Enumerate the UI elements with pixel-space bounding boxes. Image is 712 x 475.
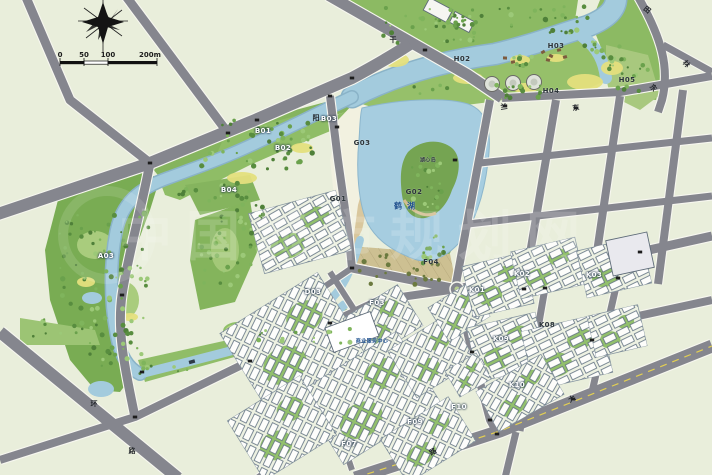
scale-label-0: 0 (58, 51, 63, 59)
site-plan-map: B01B02B03B04A03G01G02G03H02H03H04H05D03F… (0, 0, 712, 475)
scale-label-200m: 200m (139, 51, 161, 59)
scale-label-100: 100 (101, 51, 116, 59)
map-graphics (0, 0, 712, 475)
scale-label-50: 50 (79, 51, 89, 59)
